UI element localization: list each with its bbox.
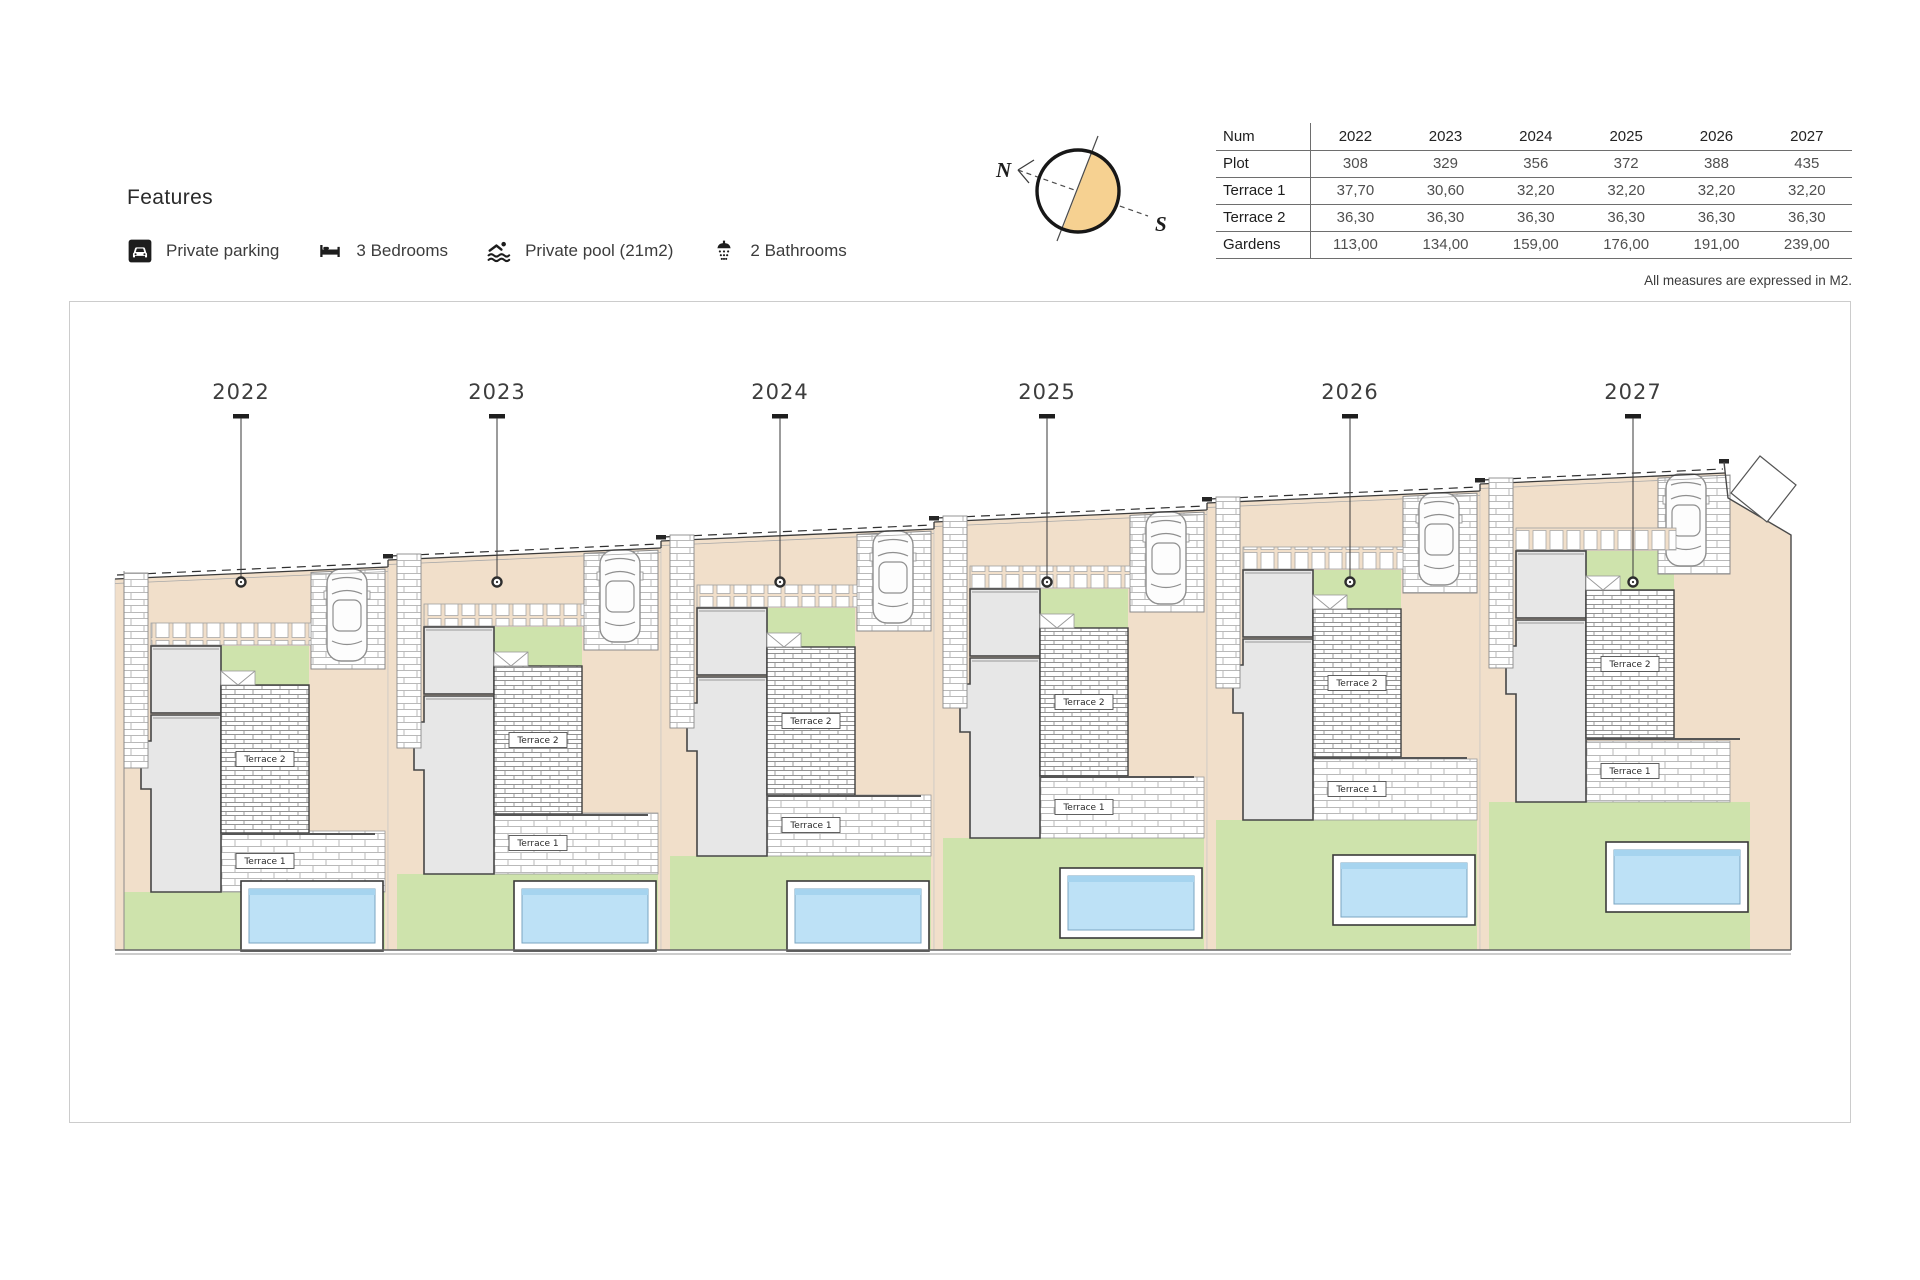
terrace2-tag-label: Terrace 2 (1608, 660, 1650, 670)
feature-label: 3 Bedrooms (356, 241, 448, 261)
parking-icon (127, 238, 153, 264)
stairs (221, 671, 255, 685)
table-cell: 113,00 (1310, 231, 1400, 258)
table-row-label: Terrace 2 (1216, 204, 1310, 231)
table-cell: 36,30 (1310, 204, 1400, 231)
pool-water-edge (795, 889, 921, 895)
feature-item: Private parking (127, 236, 279, 266)
plot-leader: 2022 (212, 380, 269, 587)
car-icon (870, 531, 916, 623)
pool-water-edge (1068, 876, 1194, 882)
table-cell: 32,20 (1762, 177, 1852, 204)
table-cell: 176,00 (1581, 231, 1671, 258)
car-icon (324, 569, 370, 661)
house-upper (1243, 570, 1313, 637)
compass: N S (975, 105, 1185, 263)
table-cell: 36,30 (1671, 204, 1761, 231)
terrace2-tag-label: Terrace 2 (789, 717, 831, 727)
table-row: Terrace 236,3036,3036,3036,3036,3036,30 (1216, 204, 1852, 231)
feature-label: Private pool (21m2) (525, 241, 673, 261)
terrace2-tag-label: Terrace 2 (1335, 679, 1377, 689)
table-cell: 388 (1671, 150, 1761, 177)
table-cell: 37,70 (1310, 177, 1400, 204)
house-lower (1233, 639, 1313, 820)
boundary-tick (383, 554, 393, 559)
table-header-row: Num202220232024202520262027 (1216, 123, 1852, 150)
table-header-cell: Num (1216, 123, 1310, 150)
table-header-cell: 2025 (1581, 123, 1671, 150)
features-title: Features (127, 186, 213, 210)
feature-item: 3 Bedrooms (317, 236, 448, 266)
table-cell: 372 (1581, 150, 1671, 177)
terrace1-tag-label: Terrace 1 (243, 857, 285, 867)
measures-table-head: Num202220232024202520262027 (1216, 123, 1852, 150)
table-row: Terrace 137,7030,6032,2032,2032,2032,20 (1216, 177, 1852, 204)
table-row-label: Plot (1216, 150, 1310, 177)
plot-year-label: 2027 (1604, 380, 1661, 404)
table-row-label: Terrace 1 (1216, 177, 1310, 204)
plot-year-label: 2026 (1321, 380, 1378, 404)
table-cell: 36,30 (1491, 204, 1581, 231)
pool-water-edge (249, 889, 375, 895)
plot-year-label: 2025 (1018, 380, 1075, 404)
stairs (767, 633, 801, 647)
table-header-cell: 2023 (1400, 123, 1490, 150)
house-upper (697, 608, 767, 675)
plot-year-label: 2024 (751, 380, 808, 404)
terrace1-tag-label: Terrace 1 (516, 839, 558, 849)
house-lower (141, 715, 221, 892)
table-header-cell: 2024 (1491, 123, 1581, 150)
stairs (1040, 614, 1074, 628)
terrace1-tag-label: Terrace 1 (1062, 803, 1104, 813)
feature-label: Private parking (166, 241, 279, 261)
terrace2-tag-label: Terrace 2 (243, 755, 285, 765)
table-cell: 159,00 (1491, 231, 1581, 258)
pool-icon (486, 238, 512, 264)
table-header-cell: 2022 (1310, 123, 1400, 150)
pergola-slats (424, 604, 584, 626)
table-cell: 191,00 (1671, 231, 1761, 258)
terrace1-tag-label: Terrace 1 (1608, 767, 1650, 777)
pool-water (1614, 850, 1740, 904)
party-wall (1489, 478, 1513, 668)
table-cell: 134,00 (1400, 231, 1490, 258)
plot-group-2026: Terrace 2Terrace 1 (1207, 487, 1480, 950)
terrace2-tag-label: Terrace 2 (516, 736, 558, 746)
party-wall (943, 516, 967, 708)
table-cell: 435 (1762, 150, 1852, 177)
table-cell: 30,60 (1400, 177, 1490, 204)
house-upper (151, 646, 221, 713)
car-icon (1143, 512, 1189, 604)
terrace1-tag-label: Terrace 1 (789, 821, 831, 831)
boundary-tick (929, 516, 939, 521)
pool-water-edge (1614, 850, 1740, 856)
party-wall (397, 554, 421, 748)
car-icon (1416, 493, 1462, 585)
pool-water (522, 889, 648, 943)
pool-water-edge (522, 889, 648, 895)
site-plan-svg: Terrace 2Terrace 1Terrace 2Terrace 1Terr… (70, 302, 1850, 1122)
pool-water-edge (1341, 863, 1467, 869)
measures-table: Num202220232024202520262027 Plot30832935… (1216, 123, 1852, 259)
feature-item: 2 Bathrooms (711, 236, 846, 266)
party-wall (1216, 497, 1240, 688)
plot-group-2027: Terrace 2Terrace 1 (1480, 469, 1791, 950)
feature-label: 2 Bathrooms (750, 241, 846, 261)
party-wall (124, 573, 148, 768)
terrace2-tag-label: Terrace 2 (1062, 698, 1104, 708)
table-cell: 308 (1310, 150, 1400, 177)
car-icon (597, 550, 643, 642)
table-cell: 356 (1491, 150, 1581, 177)
pergola-slats (151, 623, 311, 645)
boundary-tick (1475, 478, 1485, 483)
table-cell: 32,20 (1671, 177, 1761, 204)
table-header-cell: 2027 (1762, 123, 1852, 150)
features-row: Private parking3 BedroomsPrivate pool (2… (127, 236, 847, 266)
plot-year-label: 2023 (468, 380, 525, 404)
table-cell: 239,00 (1762, 231, 1852, 258)
table-cell: 32,20 (1581, 177, 1671, 204)
pool-water (1068, 876, 1194, 930)
pergola-slats (1243, 547, 1403, 569)
site-plan-frame: Terrace 2Terrace 1Terrace 2Terrace 1Terr… (69, 301, 1851, 1123)
bed-icon (317, 238, 343, 264)
measures-table-wrap: Num202220232024202520262027 Plot30832935… (1216, 123, 1852, 259)
table-row: Plot308329356372388435 (1216, 150, 1852, 177)
house-lower (960, 658, 1040, 838)
table-row-label: Gardens (1216, 231, 1310, 258)
boundary-tick (1202, 497, 1212, 502)
plot-group-2024: Terrace 2Terrace 1 (661, 525, 934, 951)
feature-item: Private pool (21m2) (486, 236, 673, 266)
house-upper (424, 627, 494, 694)
table-cell: 36,30 (1581, 204, 1671, 231)
measures-table-body: Plot308329356372388435Terrace 137,7030,6… (1216, 150, 1852, 258)
boundary-tick (656, 535, 666, 540)
shower-icon (711, 238, 737, 264)
table-cell: 329 (1400, 150, 1490, 177)
house-upper (970, 589, 1040, 656)
house-lower (687, 677, 767, 856)
stairs (494, 652, 528, 666)
table-row: Gardens113,00134,00159,00176,00191,00239… (1216, 231, 1852, 258)
plot-group-2023: Terrace 2Terrace 1 (388, 544, 661, 951)
table-cell: 32,20 (1491, 177, 1581, 204)
compass-north-label: N (995, 158, 1012, 182)
house-lower (414, 696, 494, 874)
stairs (1313, 595, 1347, 609)
table-cell: 36,30 (1762, 204, 1852, 231)
car-icon (1663, 474, 1709, 566)
pergola-slats (697, 585, 857, 607)
compass-north-arrow (1018, 160, 1034, 183)
terrace1-tag-label: Terrace 1 (1335, 785, 1377, 795)
party-wall (670, 535, 694, 728)
page: Features Private parking3 BedroomsPrivat… (0, 0, 1920, 1280)
plot-group-2022: Terrace 2Terrace 1 (115, 563, 388, 951)
house-upper (1516, 551, 1586, 618)
pool-water (795, 889, 921, 943)
measures-note: All measures are expressed in M2. (1216, 273, 1852, 288)
plot-group-2025: Terrace 2Terrace 1 (934, 506, 1207, 950)
stairs (1586, 576, 1620, 590)
pool-water (1341, 863, 1467, 917)
plot-year-label: 2022 (212, 380, 269, 404)
pergola-slats (1516, 528, 1676, 550)
pool-water (249, 889, 375, 943)
table-cell: 36,30 (1400, 204, 1490, 231)
table-header-cell: 2026 (1671, 123, 1761, 150)
house-lower (1506, 620, 1586, 802)
compass-south-label: S (1155, 212, 1167, 236)
